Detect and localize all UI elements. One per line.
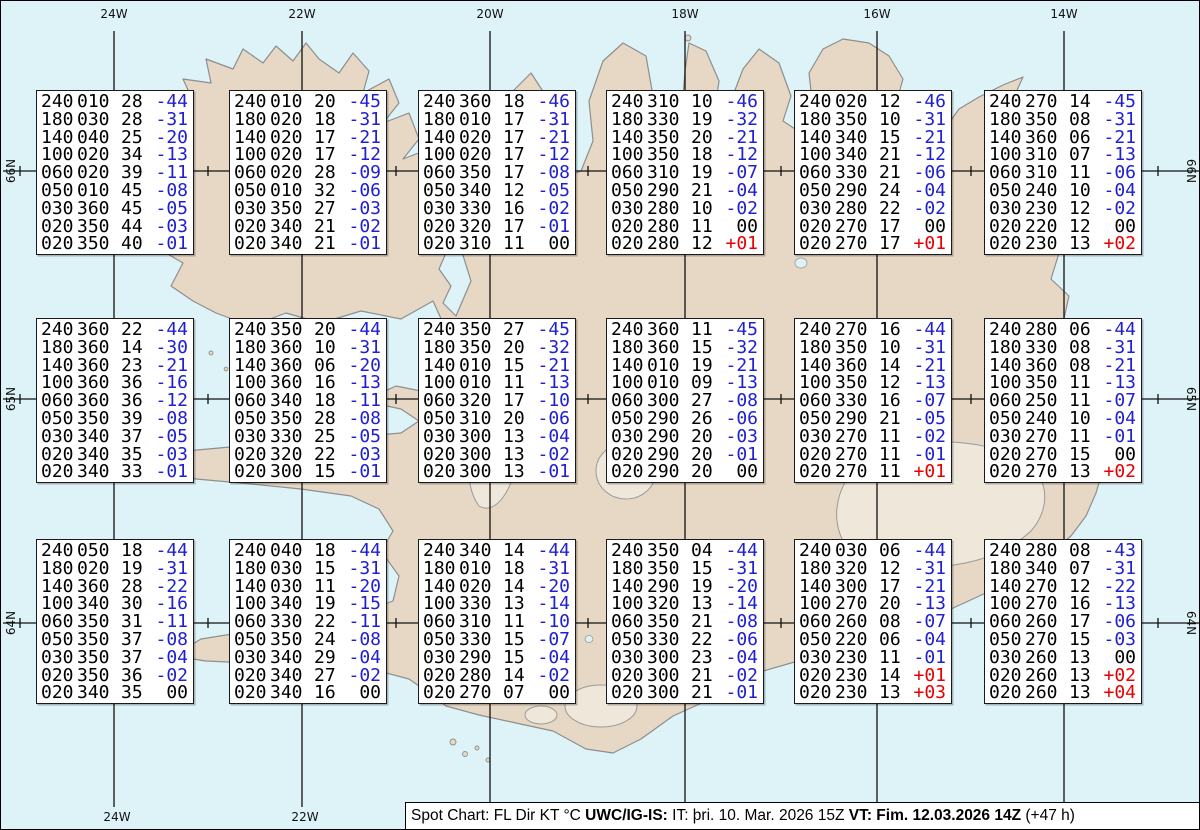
wind-direction-value: 300 bbox=[459, 428, 492, 446]
temperature-value: -02 bbox=[1102, 200, 1136, 218]
wind-speed-value: 25 bbox=[314, 428, 338, 446]
flight-level-value: 030 bbox=[611, 200, 644, 218]
flight-level-value: 030 bbox=[611, 428, 644, 446]
flight-level-value: 030 bbox=[41, 428, 74, 446]
spot-box-65N-24W: 24036022-4418036014-3014036023-211003603… bbox=[36, 318, 194, 483]
flight-level-value: 020 bbox=[799, 235, 832, 253]
wind-line: 03023011-01 bbox=[799, 649, 946, 667]
wind-speed-value: 17 bbox=[503, 111, 527, 129]
flight-level-value: 030 bbox=[41, 200, 74, 218]
temperature-value: -31 bbox=[724, 560, 758, 578]
spot-box-65N-18W: 24036011-4518036015-3214001019-211000100… bbox=[606, 318, 764, 483]
spot-chart-canvas: 24W22W20W18W16W14W24W22W66N65N64N66N65N6… bbox=[0, 0, 1200, 830]
flight-level-value: 020 bbox=[989, 235, 1022, 253]
wind-line: 03036045-05 bbox=[41, 200, 188, 218]
wind-speed-value: 10 bbox=[691, 200, 715, 218]
temperature-value: -02 bbox=[912, 200, 946, 218]
wind-direction-value: 230 bbox=[835, 649, 868, 667]
wind-direction-value: 330 bbox=[459, 200, 492, 218]
flight-level-value: 030 bbox=[989, 428, 1022, 446]
wind-speed-value: 13 bbox=[879, 684, 903, 702]
temperature-value: -04 bbox=[154, 649, 188, 667]
wind-speed-value: 14 bbox=[121, 339, 145, 357]
wind-line: 03030013-04 bbox=[423, 428, 570, 446]
wind-line: 03034037-05 bbox=[41, 428, 188, 446]
wind-line: 03034029-04 bbox=[234, 649, 381, 667]
flight-level-value: 020 bbox=[989, 684, 1022, 702]
wind-direction-value: 340 bbox=[270, 235, 303, 253]
wind-direction-value: 230 bbox=[1025, 235, 1058, 253]
wind-direction-value: 340 bbox=[77, 428, 110, 446]
flight-level-value: 020 bbox=[41, 684, 74, 702]
flight-level-value: 020 bbox=[41, 463, 74, 481]
wind-speed-value: 37 bbox=[121, 428, 145, 446]
spot-box-66N-22W: 24001020-4518002018-3114002017-211000201… bbox=[229, 90, 387, 255]
flight-level-value: 180 bbox=[423, 111, 456, 129]
flight-level-value: 030 bbox=[799, 649, 832, 667]
lat-label-right: 65N bbox=[1184, 387, 1198, 411]
temperature-value: -31 bbox=[347, 111, 381, 129]
temperature-value: -32 bbox=[724, 111, 758, 129]
wind-direction-value: 280 bbox=[647, 235, 680, 253]
flight-level-value: 180 bbox=[234, 560, 267, 578]
temperature-value: 00 bbox=[1102, 649, 1136, 667]
wind-direction-value: 010 bbox=[459, 560, 492, 578]
flight-level-value: 180 bbox=[799, 111, 832, 129]
wind-line: 0202902000 bbox=[611, 463, 758, 481]
spot-box-64N-20W: 24034014-4418001018-3114002014-201003301… bbox=[418, 539, 576, 704]
wind-speed-value: 17 bbox=[879, 235, 903, 253]
temperature-value: +02 bbox=[1102, 463, 1136, 481]
lon-label-top: 22W bbox=[288, 7, 315, 21]
wind-direction-value: 230 bbox=[835, 684, 868, 702]
spot-box-66N-20W: 24036018-4618001017-3114002017-211000201… bbox=[418, 90, 576, 255]
wind-direction-value: 360 bbox=[647, 339, 680, 357]
wind-direction-value: 290 bbox=[647, 463, 680, 481]
temperature-value: -02 bbox=[912, 428, 946, 446]
spot-box-66N-24W: 24001028-4418003028-3114004025-201000203… bbox=[36, 90, 194, 255]
wind-direction-value: 020 bbox=[77, 560, 110, 578]
temperature-value: +04 bbox=[1102, 684, 1136, 702]
wind-direction-value: 350 bbox=[270, 200, 303, 218]
flight-level-value: 180 bbox=[989, 560, 1022, 578]
footer-bar: Spot Chart: FL Dir KT °C UWC/IG-IS: IT: … bbox=[405, 802, 1200, 830]
temperature-value: -01 bbox=[536, 463, 570, 481]
temperature-value: -31 bbox=[1102, 339, 1136, 357]
temperature-value: -01 bbox=[154, 235, 188, 253]
wind-speed-value: 40 bbox=[121, 235, 145, 253]
temperature-value: +02 bbox=[1102, 235, 1136, 253]
temperature-value: -03 bbox=[724, 428, 758, 446]
temperature-value: -30 bbox=[154, 339, 188, 357]
flight-level-value: 030 bbox=[423, 649, 456, 667]
wind-line: 02027011+01 bbox=[799, 463, 946, 481]
flight-level-value: 180 bbox=[799, 339, 832, 357]
wind-line: 02023013+02 bbox=[989, 235, 1136, 253]
wind-direction-value: 330 bbox=[1025, 339, 1058, 357]
lon-label-top: 14W bbox=[1050, 7, 1077, 21]
temperature-value: -31 bbox=[347, 339, 381, 357]
wind-line: 03035027-03 bbox=[234, 200, 381, 218]
wind-speed-value: 18 bbox=[314, 111, 338, 129]
wind-line: 0203403500 bbox=[41, 684, 188, 702]
temperature-value: -31 bbox=[1102, 560, 1136, 578]
wind-speed-value: 12 bbox=[1069, 200, 1093, 218]
spot-box-66N-18W: 24031010-4618033019-3214035020-211003501… bbox=[606, 90, 764, 255]
wind-speed-value: 20 bbox=[503, 339, 527, 357]
temperature-value: 00 bbox=[536, 684, 570, 702]
flight-level-value: 020 bbox=[423, 463, 456, 481]
temperature-value: -01 bbox=[347, 235, 381, 253]
wind-direction-value: 280 bbox=[835, 200, 868, 218]
wind-direction-value: 320 bbox=[835, 560, 868, 578]
wind-speed-value: 29 bbox=[314, 649, 338, 667]
flight-level-value: 180 bbox=[989, 111, 1022, 129]
wind-direction-value: 340 bbox=[77, 463, 110, 481]
flight-level-value: 020 bbox=[611, 684, 644, 702]
wind-speed-value: 22 bbox=[879, 200, 903, 218]
wind-line: 0202700700 bbox=[423, 684, 570, 702]
footer-text: (+47 h) bbox=[1021, 807, 1075, 825]
wind-line: 03030023-04 bbox=[611, 649, 758, 667]
temperature-value: 00 bbox=[347, 684, 381, 702]
wind-line: 18002019-31 bbox=[41, 560, 188, 578]
flight-level-value: 020 bbox=[423, 235, 456, 253]
wind-speed-value: 23 bbox=[691, 649, 715, 667]
wind-speed-value: 10 bbox=[879, 111, 903, 129]
lon-label-bottom: 22W bbox=[291, 810, 318, 824]
wind-line: 03028010-02 bbox=[611, 200, 758, 218]
temperature-value: -05 bbox=[154, 428, 188, 446]
wind-line: 02030015-01 bbox=[234, 463, 381, 481]
flight-level-value: 020 bbox=[423, 684, 456, 702]
flight-level-value: 180 bbox=[611, 339, 644, 357]
lon-label-top: 20W bbox=[476, 7, 503, 21]
wind-speed-value: 21 bbox=[691, 684, 715, 702]
wind-speed-value: 11 bbox=[503, 235, 527, 253]
flight-level-value: 020 bbox=[799, 684, 832, 702]
wind-direction-value: 350 bbox=[835, 339, 868, 357]
temperature-value: -31 bbox=[912, 560, 946, 578]
wind-speed-value: 15 bbox=[691, 339, 715, 357]
wind-direction-value: 270 bbox=[1025, 428, 1058, 446]
wind-direction-value: 340 bbox=[77, 684, 110, 702]
wind-line: 18001018-31 bbox=[423, 560, 570, 578]
wind-line: 02027017+01 bbox=[799, 235, 946, 253]
lon-label-top: 24W bbox=[100, 7, 127, 21]
wind-direction-value: 270 bbox=[459, 684, 492, 702]
wind-speed-value: 19 bbox=[121, 560, 145, 578]
flight-level-value: 180 bbox=[423, 339, 456, 357]
wind-direction-value: 260 bbox=[1025, 684, 1058, 702]
wind-line: 02034033-01 bbox=[41, 463, 188, 481]
flight-level-value: 020 bbox=[41, 235, 74, 253]
wind-line: 18035020-32 bbox=[423, 339, 570, 357]
temperature-value: -01 bbox=[1102, 428, 1136, 446]
temperature-value: -31 bbox=[154, 560, 188, 578]
temperature-value: -02 bbox=[724, 200, 758, 218]
spot-box-65N-14W: 24028006-4418033008-3114036008-211003501… bbox=[984, 318, 1142, 483]
spot-box-66N-16W: 24002012-4618035010-3114034015-211003402… bbox=[794, 90, 952, 255]
flight-level-value: 020 bbox=[989, 463, 1022, 481]
wind-line: 18034007-31 bbox=[989, 560, 1136, 578]
temperature-value: -31 bbox=[912, 339, 946, 357]
wind-direction-value: 270 bbox=[835, 463, 868, 481]
wind-speed-value: 10 bbox=[314, 339, 338, 357]
flight-level-value: 030 bbox=[799, 428, 832, 446]
wind-speed-value: 15 bbox=[314, 560, 338, 578]
wind-speed-value: 16 bbox=[503, 200, 527, 218]
wind-direction-value: 340 bbox=[270, 649, 303, 667]
wind-speed-value: 10 bbox=[879, 339, 903, 357]
eyjafjallajokull-glacier bbox=[525, 706, 557, 724]
wind-speed-value: 15 bbox=[314, 463, 338, 481]
flight-level-value: 030 bbox=[234, 200, 267, 218]
flight-level-value: 020 bbox=[611, 235, 644, 253]
wind-speed-value: 12 bbox=[879, 560, 903, 578]
wind-direction-value: 300 bbox=[459, 463, 492, 481]
wind-direction-value: 010 bbox=[459, 111, 492, 129]
wind-line: 03027011-01 bbox=[989, 428, 1136, 446]
wind-speed-value: 19 bbox=[691, 111, 715, 129]
wind-line: 18003028-31 bbox=[41, 111, 188, 129]
wind-direction-value: 030 bbox=[270, 560, 303, 578]
temperature-value: -04 bbox=[536, 428, 570, 446]
wind-line: 03023012-02 bbox=[989, 200, 1136, 218]
wind-speed-value: 35 bbox=[121, 684, 145, 702]
flight-level-value: 030 bbox=[799, 200, 832, 218]
wind-direction-value: 350 bbox=[647, 560, 680, 578]
flight-level-value: 180 bbox=[989, 339, 1022, 357]
wind-direction-value: 020 bbox=[270, 111, 303, 129]
footer-text: Spot Chart: FL Dir KT °C bbox=[411, 807, 585, 825]
wind-line: 02023013+03 bbox=[799, 684, 946, 702]
temperature-value: +03 bbox=[912, 684, 946, 702]
wind-speed-value: 13 bbox=[503, 463, 527, 481]
flight-level-value: 020 bbox=[234, 463, 267, 481]
wind-line: 03029020-03 bbox=[611, 428, 758, 446]
wind-speed-value: 13 bbox=[503, 428, 527, 446]
wind-line: 02026013+04 bbox=[989, 684, 1136, 702]
wind-speed-value: 07 bbox=[503, 684, 527, 702]
wind-direction-value: 290 bbox=[459, 649, 492, 667]
wind-line: 0203101100 bbox=[423, 235, 570, 253]
wind-speed-value: 13 bbox=[1069, 649, 1093, 667]
spot-box-64N-24W: 24005018-4418002019-3114036028-221003403… bbox=[36, 539, 194, 704]
flight-level-value: 180 bbox=[234, 339, 267, 357]
wind-line: 18032012-31 bbox=[799, 560, 946, 578]
wind-speed-value: 15 bbox=[691, 560, 715, 578]
wind-line: 02028012+01 bbox=[611, 235, 758, 253]
wind-direction-value: 300 bbox=[647, 684, 680, 702]
wind-direction-value: 280 bbox=[647, 200, 680, 218]
temperature-value: +01 bbox=[912, 463, 946, 481]
flight-level-value: 180 bbox=[41, 111, 74, 129]
wind-line: 03033016-02 bbox=[423, 200, 570, 218]
wind-speed-value: 08 bbox=[1069, 339, 1093, 357]
wind-line: 18003015-31 bbox=[234, 560, 381, 578]
lat-label-right: 64N bbox=[1184, 611, 1198, 635]
temperature-value: -04 bbox=[724, 649, 758, 667]
temperature-value: 00 bbox=[536, 235, 570, 253]
wind-speed-value: 11 bbox=[879, 649, 903, 667]
flight-level-value: 020 bbox=[234, 684, 267, 702]
flight-level-value: 030 bbox=[41, 649, 74, 667]
wind-direction-value: 260 bbox=[1025, 649, 1058, 667]
wind-direction-value: 350 bbox=[835, 111, 868, 129]
flight-level-value: 030 bbox=[234, 428, 267, 446]
flight-level-value: 030 bbox=[423, 200, 456, 218]
wind-direction-value: 270 bbox=[835, 235, 868, 253]
wind-direction-value: 350 bbox=[77, 649, 110, 667]
wind-speed-value: 12 bbox=[691, 235, 715, 253]
flight-level-value: 180 bbox=[234, 111, 267, 129]
wind-line: 18035015-31 bbox=[611, 560, 758, 578]
temperature-value: -31 bbox=[536, 111, 570, 129]
temperature-value: -01 bbox=[724, 684, 758, 702]
wind-speed-value: 37 bbox=[121, 649, 145, 667]
temperature-value: -05 bbox=[154, 200, 188, 218]
flight-level-value: 180 bbox=[41, 339, 74, 357]
temperature-value: -31 bbox=[1102, 111, 1136, 129]
flight-level-value: 180 bbox=[423, 560, 456, 578]
wind-direction-value: 360 bbox=[77, 200, 110, 218]
wind-direction-value: 290 bbox=[647, 428, 680, 446]
footer-text-bold: VT: Fim. 12.03.2026 14Z bbox=[849, 807, 1021, 825]
wind-line: 03035037-04 bbox=[41, 649, 188, 667]
lat-label-right: 66N bbox=[1184, 159, 1198, 183]
spot-box-65N-22W: 24035020-4418036010-3114036006-201003601… bbox=[229, 318, 387, 483]
wind-line: 03027011-02 bbox=[799, 428, 946, 446]
wind-direction-value: 340 bbox=[1025, 560, 1058, 578]
temperature-value: -31 bbox=[347, 560, 381, 578]
wind-speed-value: 13 bbox=[1069, 235, 1093, 253]
wind-speed-value: 13 bbox=[1069, 463, 1093, 481]
wind-speed-value: 27 bbox=[314, 200, 338, 218]
flight-level-value: 180 bbox=[799, 560, 832, 578]
wind-direction-value: 270 bbox=[1025, 463, 1058, 481]
spot-box-64N-18W: 24035004-4418035015-3114029019-201003201… bbox=[606, 539, 764, 704]
wind-line: 18033019-32 bbox=[611, 111, 758, 129]
wind-speed-value: 28 bbox=[121, 111, 145, 129]
spot-box-66N-14W: 24027014-4518035008-3114036006-211003100… bbox=[984, 90, 1142, 255]
wind-direction-value: 300 bbox=[647, 649, 680, 667]
wind-line: 0203401600 bbox=[234, 684, 381, 702]
temperature-value: -03 bbox=[347, 200, 381, 218]
temperature-value: -01 bbox=[912, 649, 946, 667]
temperature-value: -01 bbox=[347, 463, 381, 481]
temperature-value: -31 bbox=[154, 111, 188, 129]
wind-line: 02034021-01 bbox=[234, 235, 381, 253]
wind-line: 18033008-31 bbox=[989, 339, 1136, 357]
wind-line: 18036010-31 bbox=[234, 339, 381, 357]
wind-speed-value: 08 bbox=[1069, 111, 1093, 129]
wind-direction-value: 350 bbox=[77, 235, 110, 253]
wind-direction-value: 360 bbox=[270, 339, 303, 357]
temperature-value: -01 bbox=[154, 463, 188, 481]
wind-direction-value: 330 bbox=[270, 428, 303, 446]
temperature-value: -31 bbox=[912, 111, 946, 129]
wind-speed-value: 07 bbox=[1069, 560, 1093, 578]
wind-speed-value: 11 bbox=[1069, 428, 1093, 446]
wind-speed-value: 21 bbox=[314, 235, 338, 253]
wind-line: 02030013-01 bbox=[423, 463, 570, 481]
flight-level-value: 030 bbox=[423, 428, 456, 446]
flight-level-value: 030 bbox=[989, 649, 1022, 667]
temperature-value: 00 bbox=[154, 684, 188, 702]
wind-direction-value: 310 bbox=[459, 235, 492, 253]
wind-direction-value: 350 bbox=[1025, 111, 1058, 129]
footer-text-bold: UWC/IG-IS: bbox=[585, 807, 668, 825]
wind-direction-value: 360 bbox=[77, 339, 110, 357]
temperature-value: 00 bbox=[724, 463, 758, 481]
wind-line: 18002018-31 bbox=[234, 111, 381, 129]
wind-line: 18036015-32 bbox=[611, 339, 758, 357]
wind-speed-value: 20 bbox=[691, 463, 715, 481]
wind-speed-value: 20 bbox=[691, 428, 715, 446]
wind-line: 03028022-02 bbox=[799, 200, 946, 218]
temperature-value: -04 bbox=[347, 649, 381, 667]
flight-level-value: 020 bbox=[234, 235, 267, 253]
wind-direction-value: 270 bbox=[835, 428, 868, 446]
wind-line: 18035010-31 bbox=[799, 339, 946, 357]
lon-label-bottom: 24W bbox=[103, 810, 130, 824]
flight-level-value: 030 bbox=[989, 200, 1022, 218]
temperature-value: -04 bbox=[536, 649, 570, 667]
wind-direction-value: 340 bbox=[270, 684, 303, 702]
wind-line: 18036014-30 bbox=[41, 339, 188, 357]
flight-level-value: 030 bbox=[611, 649, 644, 667]
lat-label-left: 65N bbox=[4, 387, 18, 411]
wind-speed-value: 11 bbox=[879, 428, 903, 446]
flight-level-value: 180 bbox=[41, 560, 74, 578]
wind-direction-value: 350 bbox=[459, 339, 492, 357]
wind-line: 02035040-01 bbox=[41, 235, 188, 253]
wind-speed-value: 11 bbox=[879, 463, 903, 481]
wind-line: 18035010-31 bbox=[799, 111, 946, 129]
temperature-value: -32 bbox=[724, 339, 758, 357]
wind-line: 0302601300 bbox=[989, 649, 1136, 667]
temperature-value: +01 bbox=[724, 235, 758, 253]
footer-text: IT: þri. 10. Mar. 2026 15Z bbox=[668, 807, 849, 825]
wind-line: 03029015-04 bbox=[423, 649, 570, 667]
flight-level-value: 030 bbox=[234, 649, 267, 667]
temperature-value: -02 bbox=[536, 200, 570, 218]
lon-label-top: 18W bbox=[671, 7, 698, 21]
wind-speed-value: 18 bbox=[503, 560, 527, 578]
flight-level-value: 020 bbox=[799, 463, 832, 481]
spot-box-65N-20W: 24035027-4518035020-3214001015-211000101… bbox=[418, 318, 576, 483]
spot-box-64N-22W: 24004018-4418003015-3114003011-201003401… bbox=[229, 539, 387, 704]
lon-label-top: 16W bbox=[863, 7, 890, 21]
spot-box-64N-14W: 24028008-4318034007-3114027012-221002701… bbox=[984, 539, 1142, 704]
wind-line: 03033025-05 bbox=[234, 428, 381, 446]
flight-level-value: 180 bbox=[611, 560, 644, 578]
temperature-value: -05 bbox=[347, 428, 381, 446]
wind-line: 18001017-31 bbox=[423, 111, 570, 129]
wind-line: 02027013+02 bbox=[989, 463, 1136, 481]
spot-box-65N-16W: 24027016-4418035010-3114036014-211003501… bbox=[794, 318, 952, 483]
wind-speed-value: 16 bbox=[314, 684, 338, 702]
wind-line: 18035008-31 bbox=[989, 111, 1136, 129]
wind-direction-value: 330 bbox=[647, 111, 680, 129]
wind-direction-value: 300 bbox=[270, 463, 303, 481]
temperature-value: +01 bbox=[912, 235, 946, 253]
flight-level-value: 180 bbox=[611, 111, 644, 129]
wind-speed-value: 45 bbox=[121, 200, 145, 218]
temperature-value: -32 bbox=[536, 339, 570, 357]
wind-speed-value: 33 bbox=[121, 463, 145, 481]
